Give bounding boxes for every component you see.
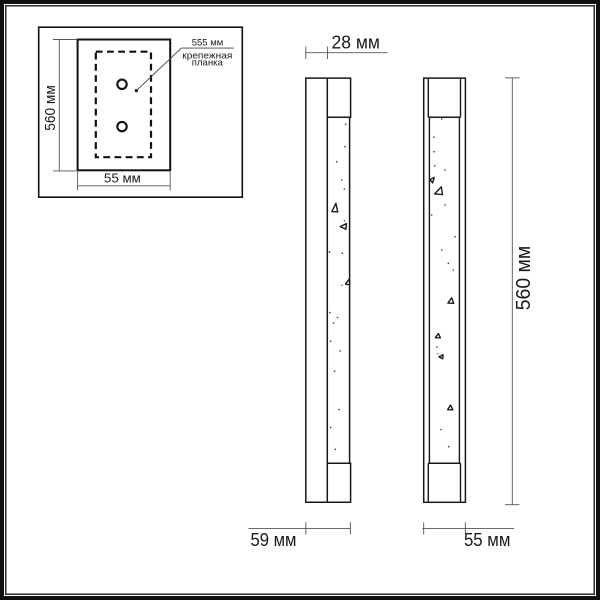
svg-text:560 мм: 560 мм	[512, 246, 535, 311]
svg-text:59 мм: 59 мм	[251, 529, 297, 550]
svg-text:55 мм: 55 мм	[464, 529, 511, 550]
svg-text:55 мм: 55 мм	[104, 171, 141, 186]
svg-text:28 мм: 28 мм	[331, 31, 380, 52]
svg-text:560 мм: 560 мм	[43, 85, 59, 131]
svg-text:планка: планка	[192, 58, 224, 69]
svg-text:555 мм: 555 мм	[192, 38, 224, 48]
